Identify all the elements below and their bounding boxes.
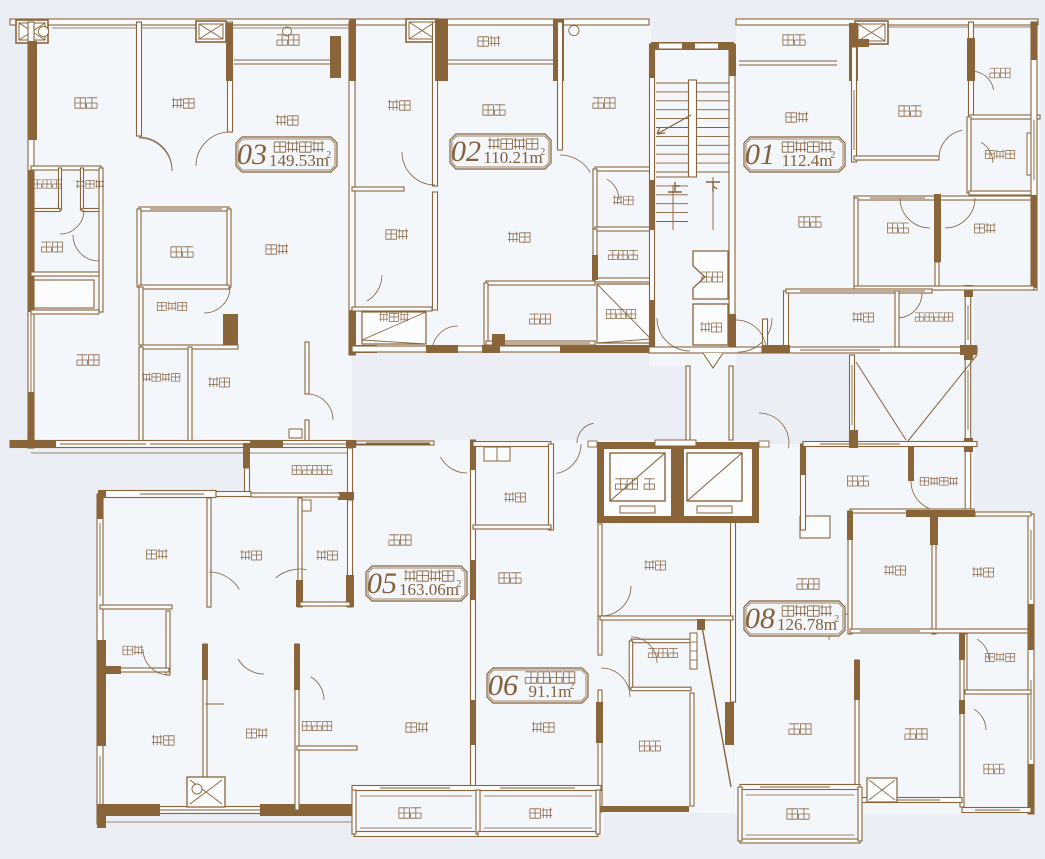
svg-text:08: 08 xyxy=(745,602,775,635)
svg-text:01: 01 xyxy=(745,138,775,171)
svg-text:02: 02 xyxy=(451,135,481,168)
svg-text:163.06m: 163.06m xyxy=(399,580,459,599)
svg-text:112.4m: 112.4m xyxy=(782,151,833,170)
svg-text:2: 2 xyxy=(540,147,545,158)
svg-text:06: 06 xyxy=(488,669,518,702)
svg-text:2: 2 xyxy=(834,614,839,625)
svg-text:91.1m: 91.1m xyxy=(529,682,572,701)
svg-text:2: 2 xyxy=(326,150,331,161)
svg-text:03: 03 xyxy=(237,138,267,171)
svg-text:110.21m: 110.21m xyxy=(483,148,542,167)
svg-text:149.53m: 149.53m xyxy=(269,151,329,170)
svg-text:05: 05 xyxy=(367,567,397,600)
svg-text:126.78m: 126.78m xyxy=(777,615,837,634)
svg-text:2: 2 xyxy=(456,579,461,590)
svg-text:2: 2 xyxy=(830,150,835,161)
svg-text:2: 2 xyxy=(570,681,575,692)
